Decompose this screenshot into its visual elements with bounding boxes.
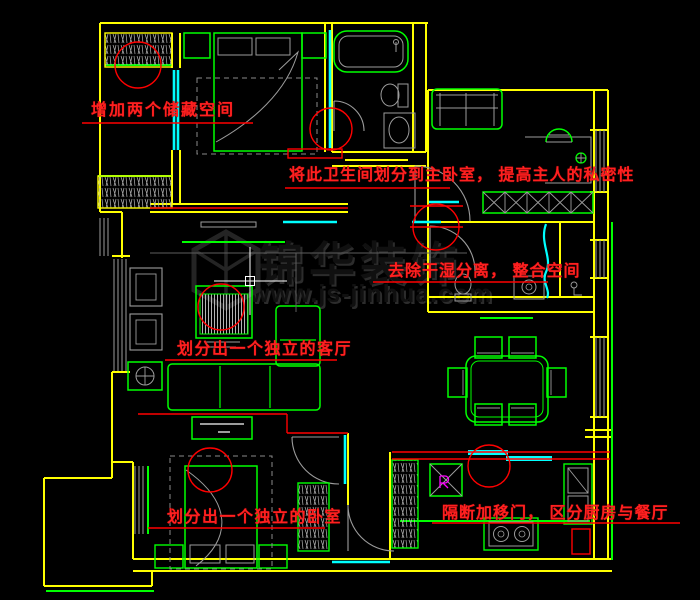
cad-viewport[interactable]: 锦华装饰 www.js-jinhua.com — [0, 0, 700, 600]
annotation-living-room: 划分出一个独立的客厅 — [177, 335, 352, 359]
red-wall-line — [410, 206, 463, 227]
nightstand-left — [184, 33, 210, 58]
bedroom2-furniture — [155, 417, 329, 569]
study-furniture — [432, 89, 593, 213]
pillow — [218, 38, 252, 55]
dresser — [192, 417, 252, 439]
sofa — [168, 364, 320, 410]
hall-closet — [392, 460, 418, 548]
toilet — [381, 84, 399, 106]
annotation-wet-dry: 去除干湿分离， 整合空间 — [388, 257, 580, 281]
master-bed — [214, 33, 302, 151]
hall-door-arc — [348, 505, 394, 551]
bathtub — [334, 31, 408, 72]
annotation-bedroom: 划分出一个独立的卧室 — [167, 503, 342, 527]
nightstand — [155, 545, 183, 568]
nightstand-right — [302, 33, 326, 58]
side-cabinet — [130, 314, 162, 350]
windows-layer — [100, 130, 604, 534]
wardrobe-bottom — [98, 176, 172, 208]
console-table — [201, 222, 256, 227]
red-box — [572, 529, 590, 554]
nightstand — [259, 545, 287, 568]
bedroom2-door-arc — [292, 437, 339, 484]
annotation-master-bath: 将此卫生间划分到主卧室， 提高主人的私密性 — [289, 161, 634, 185]
pillow — [190, 545, 220, 563]
study-closet — [483, 192, 593, 213]
annotation-kitchen-dining: 隔断加移门， 区分厨房与餐厅 — [442, 499, 668, 523]
annotation-storage: 增加两个储藏空间 — [91, 96, 235, 120]
bath1-door-arc — [334, 101, 364, 131]
tv-hatch — [200, 294, 248, 334]
washbasin — [389, 117, 409, 143]
floor-drain — [571, 282, 577, 288]
pillow — [226, 545, 254, 563]
markup-circle — [188, 448, 232, 492]
bathroom1-fixtures — [334, 31, 415, 148]
toilet-tank — [398, 84, 408, 107]
dining-furniture — [448, 337, 566, 425]
master-bedroom-furniture — [98, 33, 326, 227]
pillow — [256, 38, 290, 55]
